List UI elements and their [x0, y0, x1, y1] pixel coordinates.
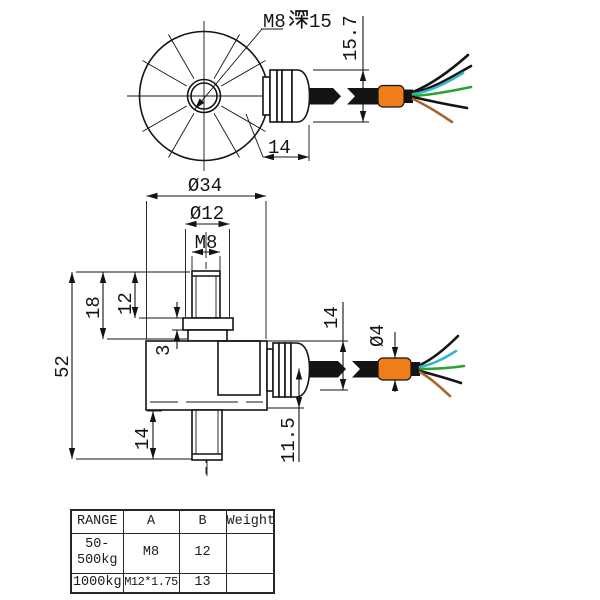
- cell-weight: [226, 533, 274, 573]
- svg-text:52: 52: [52, 355, 74, 378]
- header-weight: Weight: [226, 510, 274, 533]
- gland-dome: [291, 343, 310, 397]
- svg-text:12: 12: [115, 292, 137, 315]
- cjk-shen-glyph: [290, 11, 308, 28]
- header-range: RANGE: [71, 510, 123, 533]
- cell-b: 12: [179, 533, 226, 573]
- dim-stud-length: 14: [132, 411, 162, 459]
- gland-dome: [292, 70, 310, 122]
- svg-text:14: 14: [268, 137, 291, 159]
- svg-text:3: 3: [153, 345, 175, 356]
- cell-a: M8: [123, 533, 179, 573]
- header-a: A: [123, 510, 179, 533]
- svg-text:Ø4: Ø4: [367, 324, 389, 347]
- svg-text:Ø12: Ø12: [190, 203, 224, 225]
- top-view: 15.7 14: [127, 11, 471, 171]
- svg-text:18: 18: [83, 296, 105, 319]
- sensor-body: [146, 271, 267, 476]
- cell-range: 50- 500kg: [71, 533, 123, 573]
- spec-row-1000kg: 1000kg M12*1.75 13: [71, 573, 274, 593]
- thread-note-prefix: M8: [263, 11, 286, 33]
- boss-flange: [183, 318, 233, 330]
- dim-total-height: 52: [52, 272, 74, 459]
- cable-tip: [411, 362, 420, 376]
- spec-table: RANGE A B Weight 50- 500kg M8 12 1000kg …: [70, 509, 275, 594]
- svg-text:14: 14: [132, 427, 154, 450]
- svg-text:M8: M8: [195, 232, 218, 254]
- dim-upper-height: 18: [83, 272, 105, 339]
- spec-header-row: RANGE A B Weight: [71, 510, 274, 533]
- svg-text:14: 14: [321, 306, 343, 329]
- svg-text:15.7: 15.7: [340, 15, 362, 61]
- step: [188, 330, 227, 341]
- cell-a: M12*1.75: [123, 573, 179, 593]
- cell-b: 13: [179, 573, 226, 593]
- cable: [310, 55, 472, 122]
- cable-sleeve: [378, 358, 411, 380]
- svg-text:11.5: 11.5: [278, 417, 300, 463]
- thread-note-suffix: 15: [309, 11, 332, 33]
- svg-text:Ø34: Ø34: [188, 175, 222, 197]
- wires: [413, 55, 471, 122]
- header-b: B: [179, 510, 226, 533]
- bottom-stud: [192, 410, 222, 460]
- cable-tip: [404, 90, 413, 104]
- cell-weight: [226, 573, 274, 593]
- cell-range: 1000kg: [71, 573, 123, 593]
- front-view: Ø34 Ø12 M8: [52, 175, 464, 477]
- cable-sleeve: [378, 86, 404, 108]
- dim-boss-height: 12: [115, 272, 137, 318]
- spec-row-50-500kg: 50- 500kg M8 12: [71, 533, 274, 573]
- wires: [420, 336, 464, 396]
- cable-gland: [263, 70, 310, 122]
- cable-gland: [267, 343, 310, 397]
